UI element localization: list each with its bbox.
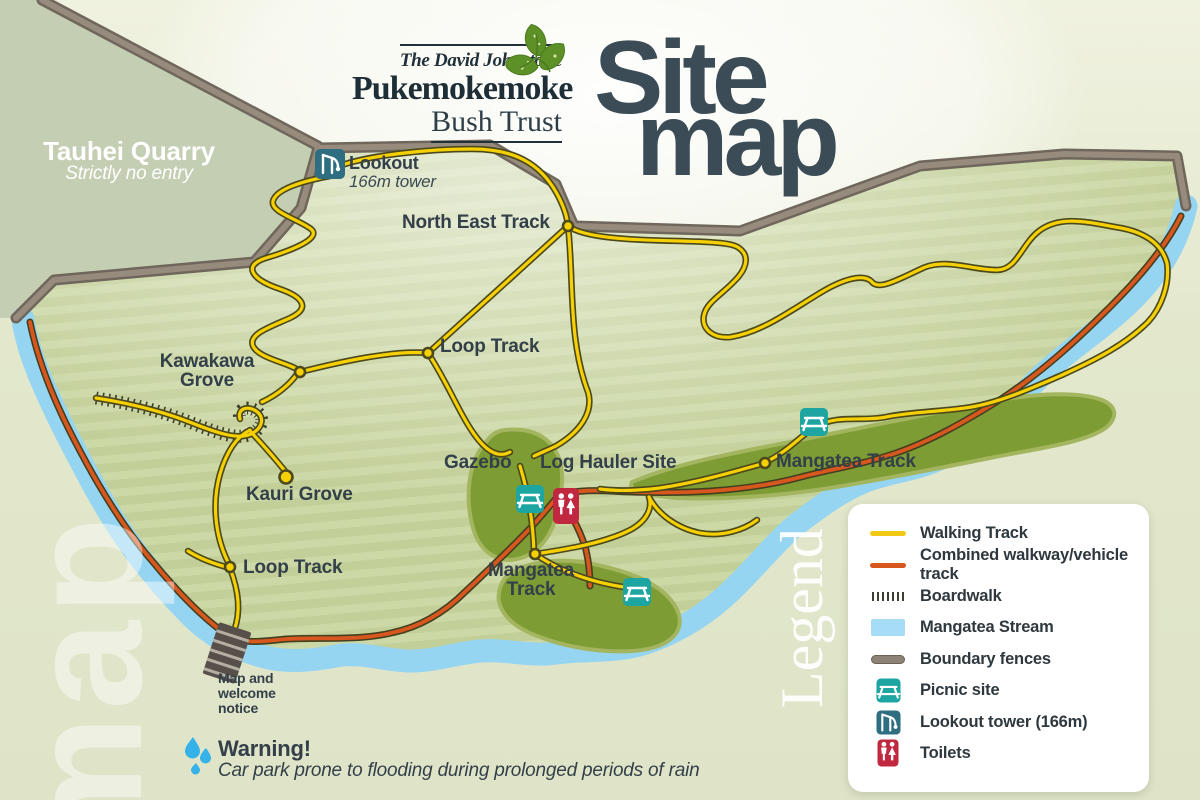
legend-label: Combined walkway/vehicle track <box>920 546 1149 584</box>
toilets-icon <box>866 739 910 767</box>
walking-track-line <box>866 531 910 536</box>
legend-row-toilets: Toilets <box>866 738 1149 769</box>
mangatea-track-lower-label: Mangatea Track <box>488 561 574 599</box>
lookout-tower-icon <box>866 710 910 735</box>
loop-track-upper-label: Loop Track <box>440 336 539 358</box>
legend-label: Walking Track <box>920 524 1028 543</box>
legend-row-lookout-tower: Lookout tower (166m) <box>866 706 1149 737</box>
boardwalk-dashes <box>866 592 910 601</box>
quarry-note-label: Strictly no entry <box>65 163 193 185</box>
mangatea-track-label: Mangatea Track <box>776 451 916 473</box>
warning-body: Car park prone to flooding during prolon… <box>218 760 699 782</box>
legend-label: Boundary fences <box>920 650 1051 669</box>
map-watermark-text: map <box>6 511 166 800</box>
legend-label: Mangatea Stream <box>920 618 1054 637</box>
legend-row-boundary-fences: Boundary fences <box>866 644 1149 675</box>
notice-line3: notice <box>218 701 276 716</box>
legend-watermark-text: Legend <box>772 528 832 708</box>
loop-track-lower-label: Loop Track <box>243 557 342 579</box>
lookout-label: Lookout <box>349 153 419 174</box>
combined-track-line <box>866 563 910 568</box>
warning-title: Warning! <box>218 736 311 762</box>
legend-panel: Walking Track Combined walkway/vehicle t… <box>848 504 1149 792</box>
legend-row-stream: Mangatea Stream <box>866 612 1149 643</box>
logo-line3: Bush Trust <box>431 105 562 143</box>
fence-swatch <box>866 655 910 664</box>
picnic-site-icon <box>800 408 828 436</box>
mangatea-lower-line1: Mangatea <box>488 561 574 580</box>
legend-row-combined-track: Combined walkway/vehicle track <box>866 549 1149 580</box>
stream-swatch <box>866 619 910 636</box>
north-east-track-label: North East Track <box>402 212 550 234</box>
page-title-word2: map <box>636 88 835 192</box>
legend-label: Toilets <box>920 744 971 763</box>
kawakawa-grove-line1: Kawakawa <box>160 352 255 371</box>
toilets-icon <box>553 488 579 524</box>
picnic-site-icon <box>516 485 544 513</box>
legend-row-walking-track: Walking Track <box>866 518 1149 549</box>
map-welcome-notice-label: Map and welcome notice <box>218 671 276 716</box>
picnic-icon <box>866 678 910 703</box>
lookout-sub-label: 166m tower <box>349 172 436 192</box>
legend-row-picnic-site: Picnic site <box>866 675 1149 706</box>
legend-row-boardwalk: Boardwalk <box>866 581 1149 612</box>
legend-label: Picnic site <box>920 681 999 700</box>
mangatea-lower-line2: Track <box>488 580 574 599</box>
notice-line1: Map and <box>218 671 276 686</box>
gazebo-label: Gazebo <box>444 452 511 474</box>
kawakawa-grove-line2: Grove <box>160 371 255 390</box>
kauri-grove-label: Kauri Grove <box>246 484 353 506</box>
site-map-poster: map Legend The David Johnstone Pukemokem… <box>0 0 1200 800</box>
leaves-icon <box>492 18 576 98</box>
picnic-site-icon <box>623 578 651 606</box>
legend-label: Lookout tower (166m) <box>920 713 1087 732</box>
log-hauler-site-label: Log Hauler Site <box>540 452 676 474</box>
lookout-tower-icon <box>315 149 345 179</box>
kawakawa-grove-label: Kawakawa Grove <box>160 352 255 390</box>
notice-line2: welcome <box>218 686 276 701</box>
legend-label: Boardwalk <box>920 587 1002 606</box>
